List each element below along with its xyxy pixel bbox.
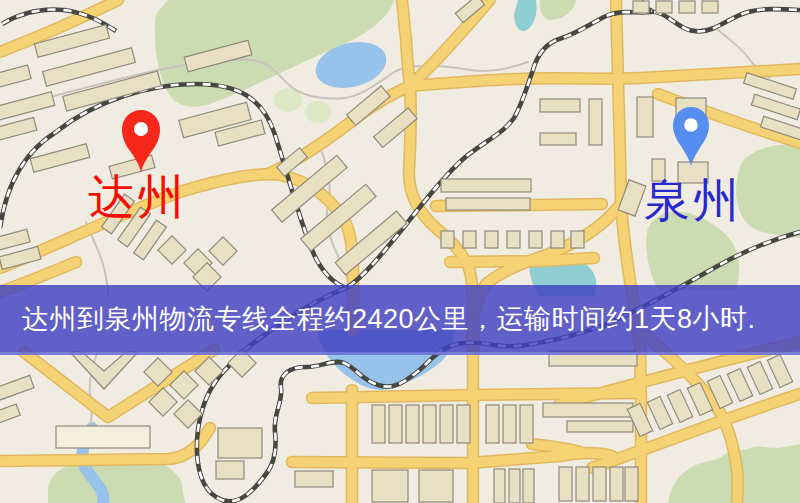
destination-city-label: 泉州 [644,177,742,223]
route-info-text: 达州到泉州物流专线全程约2420公里，运输时间约1天8小时. [22,301,756,337]
route-info-banner: 达州到泉州物流专线全程约2420公里，运输时间约1天8小时. [0,285,800,355]
map-canvas [0,0,800,503]
logistics-route-map-image: 达州 泉州 达州到泉州物流专线全程约2420公里，运输时间约1天8小时. [0,0,800,503]
origin-city-label: 达州 [88,173,186,220]
